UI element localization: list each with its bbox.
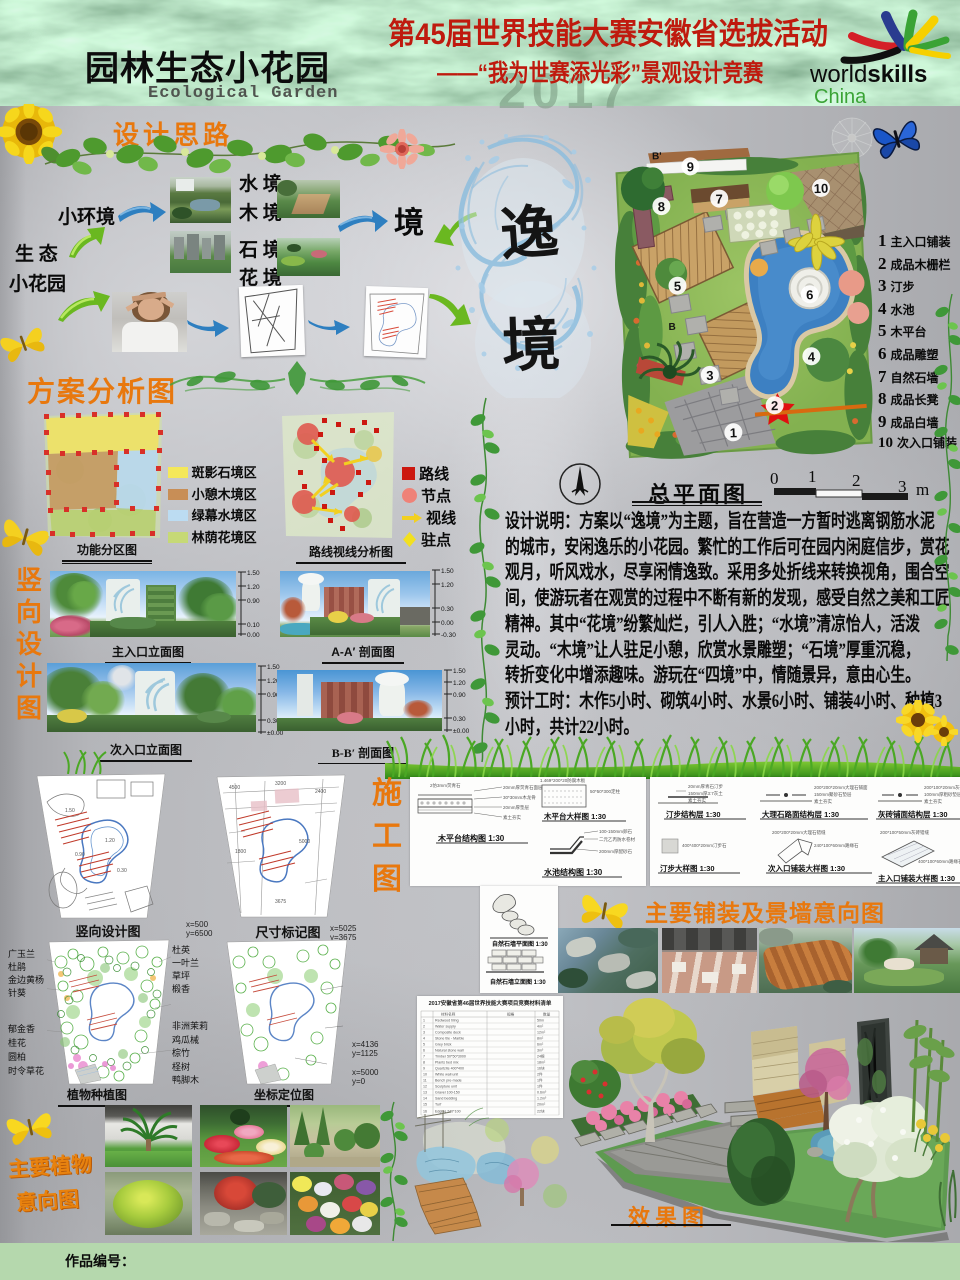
svg-text:150mm厚3:7灰土: 150mm厚3:7灰土 [688,790,723,797]
svg-text:水池结构图 1:30: 水池结构图 1:30 [543,867,603,877]
svg-text:200*200*20mm大理石错缝: 200*200*20mm大理石错缝 [772,829,826,836]
svg-text:2件: 2件 [537,1072,543,1077]
svg-text:White wall unit: White wall unit [435,1073,458,1077]
svg-text:20mm厚垫层: 20mm厚垫层 [503,804,530,811]
svg-text:2: 2 [423,1025,425,1029]
svg-text:0.30: 0.30 [441,606,454,613]
svg-text:±0.00: ±0.00 [267,730,284,737]
svg-text:400*100*60mm路缘石: 400*100*60mm路缘石 [918,858,960,865]
svg-text:Composite deck: Composite deck [435,1031,461,1035]
svg-text:灰砖铺面结构层 1:30: 灰砖铺面结构层 1:30 [878,809,948,819]
svg-text:7: 7 [423,1055,425,1059]
svg-text:20mm厚荧青石面层: 20mm厚荧青石面层 [503,784,543,791]
svg-text:24根: 24根 [537,1054,545,1059]
svg-text:3675: 3675 [275,899,286,905]
svg-text:6: 6 [806,287,814,302]
svg-text:8: 8 [658,199,666,214]
svg-text:18m²: 18m² [537,1061,546,1065]
svg-text:规格: 规格 [507,1012,515,1017]
svg-text:5: 5 [423,1043,425,1047]
svg-text:8m²: 8m² [537,1037,544,1041]
svg-text:Plants bed mix: Plants bed mix [435,1061,459,1065]
svg-text:20mm厚青石汀步: 20mm厚青石汀步 [688,783,724,790]
svg-text:30*30mm木龙骨: 30*30mm木龙骨 [503,794,536,801]
svg-text:素土夯实: 素土夯实 [688,797,706,804]
svg-text:二元乙丙防水卷材: 二元乙丙防水卷材 [599,836,635,843]
svg-text:1.50: 1.50 [441,568,454,575]
svg-text:11: 11 [423,1079,427,1083]
svg-text:100-150mm卵石: 100-150mm卵石 [599,828,633,835]
svg-text:自然石墙立面图 1:30: 自然石墙立面图 1:30 [490,978,546,986]
svg-text:4: 4 [423,1037,425,1041]
svg-text:汀步结构层 1:30: 汀步结构层 1:30 [666,809,721,819]
svg-text:6: 6 [423,1049,425,1053]
svg-text:木平台大样图 1:30: 木平台大样图 1:30 [543,811,606,821]
svg-text:汀步大样图 1:30: 汀步大样图 1:30 [660,863,715,873]
svg-text:0.30: 0.30 [117,868,127,874]
svg-text:240*100*60mm路缘石: 240*100*60mm路缘石 [814,842,859,849]
svg-text:8: 8 [423,1061,425,1065]
svg-text:素土夯实: 素土夯实 [503,814,521,821]
svg-text:9: 9 [687,159,695,174]
svg-text:200mm厚配砂石: 200mm厚配砂石 [599,848,633,855]
svg-text:Quartzite 400*400: Quartzite 400*400 [435,1067,464,1071]
svg-text:13: 13 [423,1091,427,1095]
svg-text:1.20: 1.20 [441,582,454,589]
svg-text:B: B [668,322,676,333]
svg-text:1.20: 1.20 [453,680,466,687]
svg-text:主入口铺装大样图 1:30: 主入口铺装大样图 1:30 [878,873,955,883]
svg-text:1.50: 1.50 [453,668,466,675]
svg-text:2仿3mm荧青石: 2仿3mm荧青石 [430,782,461,789]
svg-text:素土夯实: 素土夯实 [924,798,942,805]
svg-text:5000: 5000 [299,839,310,845]
svg-text:3m³: 3m³ [537,1049,544,1053]
svg-text:0: 0 [770,470,779,488]
svg-text:150mm聚砂石垫层: 150mm聚砂石垫层 [814,791,852,798]
svg-text:0.90: 0.90 [75,852,85,858]
svg-text:Water supply: Water supply [435,1025,456,1029]
svg-text:Natural stone wall: Natural stone wall [435,1049,464,1053]
svg-text:1.20: 1.20 [105,838,115,844]
svg-text:0.10: 0.10 [247,622,260,629]
svg-text:3200: 3200 [275,781,286,787]
svg-text:9: 9 [423,1067,425,1071]
svg-text:0.30: 0.30 [453,716,466,723]
svg-text:0.90: 0.90 [247,598,260,605]
svg-text:0.6m³: 0.6m³ [537,1091,547,1095]
svg-text:5: 5 [674,279,682,294]
svg-text:B': B' [652,151,662,162]
svg-text:100mm厚粗砂垫层: 100mm厚粗砂垫层 [924,791,960,798]
svg-text:Sculpture unit: Sculpture unit [435,1085,457,1089]
svg-text:0.00: 0.00 [247,632,260,639]
svg-text:Gravel 100-150: Gravel 100-150 [435,1091,460,1095]
svg-text:材料名称: 材料名称 [441,1012,456,1017]
svg-text:4: 4 [808,349,816,364]
svg-text:2: 2 [771,398,779,413]
svg-text:Bench pre-made: Bench pre-made [435,1079,462,1083]
svg-text:1: 1 [730,425,738,440]
svg-text:16块: 16块 [537,1066,545,1071]
svg-text:木平台结构图 1:30: 木平台结构图 1:30 [437,833,505,843]
svg-text:3: 3 [706,368,714,383]
svg-text:1.20: 1.20 [247,584,260,591]
svg-text:50m: 50m [537,1019,544,1023]
svg-text:200*200*20mm大理石铺面: 200*200*20mm大理石铺面 [814,784,868,791]
svg-text:Stone tile - Marble: Stone tile - Marble [435,1037,464,1041]
svg-text:素土夯实: 素土夯实 [814,798,832,805]
svg-text:10: 10 [814,181,829,196]
svg-text:Timber 50*50*3000: Timber 50*50*3000 [435,1055,466,1059]
svg-text:0.90: 0.90 [453,692,466,699]
svg-text:200*100*20mm灰砖铺面: 200*100*20mm灰砖铺面 [924,784,960,791]
svg-text:2: 2 [852,471,861,490]
svg-text:4500: 4500 [229,785,240,791]
svg-text:12: 12 [423,1085,427,1089]
svg-text:2400: 2400 [315,789,326,795]
svg-text:3: 3 [423,1031,425,1035]
svg-text:7: 7 [715,191,723,206]
svg-text:自然石墙平面图 1:30: 自然石墙平面图 1:30 [492,940,548,948]
svg-text:200*100*50mm灰砖错缝: 200*100*50mm灰砖错缝 [880,829,930,836]
svg-text:12m²: 12m² [537,1031,546,1035]
svg-text:1.50: 1.50 [247,570,260,577]
svg-text:1.50: 1.50 [65,808,75,814]
svg-text:50*50*300定柱: 50*50*300定柱 [590,788,621,795]
svg-text:Redwood tiling: Redwood tiling [435,1019,459,1023]
svg-text:1800: 1800 [235,849,246,855]
svg-text:Grey brick: Grey brick [435,1043,452,1047]
svg-text:次入口铺装大样图 1:30: 次入口铺装大样图 1:30 [768,863,845,873]
svg-text:大理石路面结构层 1:30: 大理石路面结构层 1:30 [762,809,839,819]
svg-text:1件: 1件 [537,1084,543,1089]
svg-text:1: 1 [423,1019,425,1023]
svg-text:10: 10 [423,1073,427,1077]
svg-text:6m²: 6m² [537,1043,544,1047]
svg-text:1件: 1件 [537,1078,543,1083]
svg-text:数量: 数量 [543,1012,551,1017]
svg-text:1: 1 [808,470,817,486]
svg-text:4m²: 4m² [537,1025,544,1029]
svg-text:400*400*20mm汀步石: 400*400*20mm汀步石 [682,842,727,849]
svg-text:0.00: 0.00 [441,620,454,627]
svg-text:1.469*200*20防腐木板: 1.469*200*20防腐木板 [540,777,586,784]
svg-text:-0.30: -0.30 [441,632,456,639]
